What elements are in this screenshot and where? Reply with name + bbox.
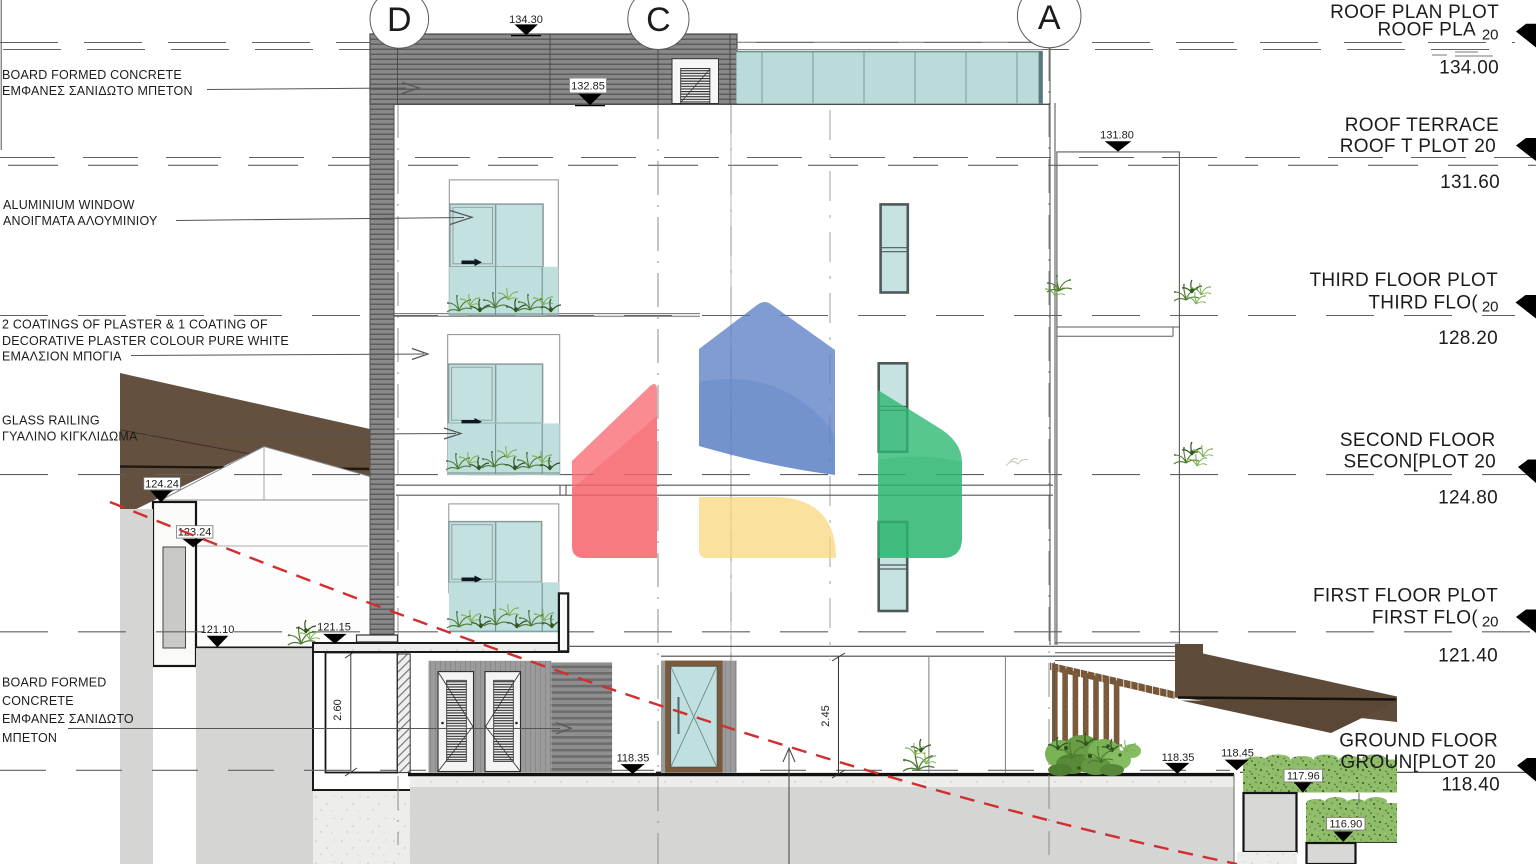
svg-text:121.15: 121.15 <box>317 622 351 634</box>
svg-text:ΕΜΑΛΣΙΟΝ ΜΠΟΓΙΑ: ΕΜΑΛΣΙΟΝ ΜΠΟΓΙΑ <box>2 350 122 364</box>
svg-text:C: C <box>646 1 671 39</box>
svg-text:2.45: 2.45 <box>820 705 832 726</box>
svg-text:134.30: 134.30 <box>509 14 543 26</box>
svg-text:118.35: 118.35 <box>1162 752 1195 764</box>
svg-text:CONCRETE: CONCRETE <box>2 694 74 708</box>
svg-text:ΓΥΑΛΙΝΟ ΚΙΓΚΛΙΔΩΜΑ: ΓΥΑΛΙΝΟ ΚΙΓΚΛΙΔΩΜΑ <box>2 429 138 443</box>
svg-text:118.45: 118.45 <box>1221 747 1254 759</box>
svg-text:ROOF T PLOT 20: ROOF T PLOT 20 <box>1340 136 1496 157</box>
svg-text:THIRD FLOOR PLOT: THIRD FLOOR PLOT <box>1310 270 1499 291</box>
svg-text:128.20: 128.20 <box>1438 328 1498 349</box>
svg-text:118.35: 118.35 <box>617 752 650 764</box>
svg-text:20: 20 <box>1482 299 1499 316</box>
svg-text:GLASS RAILING: GLASS RAILING <box>2 414 100 428</box>
svg-text:DECORATIVE PLASTER COLOUR PURE: DECORATIVE PLASTER COLOUR PURE WHITE <box>2 334 289 348</box>
svg-text:131.80: 131.80 <box>1100 130 1134 142</box>
svg-text:GROUND FLOOR: GROUND FLOOR <box>1339 731 1498 752</box>
svg-text:GROUN[PLOT 20: GROUN[PLOT 20 <box>1340 752 1496 773</box>
svg-text:2.60: 2.60 <box>332 699 344 720</box>
svg-text:124.80: 124.80 <box>1438 488 1498 509</box>
svg-text:SECON[PLOT 20: SECON[PLOT 20 <box>1344 452 1496 473</box>
svg-text:124.24: 124.24 <box>145 478 179 490</box>
svg-text:ΑΝΟΙΓΜΑΤΑ ΑΛΟΥΜΙΝΙΟΥ: ΑΝΟΙΓΜΑΤΑ ΑΛΟΥΜΙΝΙΟΥ <box>3 214 158 228</box>
svg-text:118.40: 118.40 <box>1441 775 1500 796</box>
svg-text:ΜΠΕΤΟΝ: ΜΠΕΤΟΝ <box>2 731 57 745</box>
svg-text:A: A <box>1038 0 1061 37</box>
svg-text:117.96: 117.96 <box>1287 771 1320 783</box>
svg-text:ROOF TERRACE: ROOF TERRACE <box>1345 115 1499 136</box>
svg-text:THIRD FLO(: THIRD FLO( <box>1368 293 1478 314</box>
svg-text:121.40: 121.40 <box>1438 646 1498 667</box>
svg-text:134.00: 134.00 <box>1439 58 1499 79</box>
svg-text:ROOF PLA: ROOF PLA <box>1378 20 1477 41</box>
svg-text:BOARD FORMED: BOARD FORMED <box>2 676 107 690</box>
svg-text:2 COATINGS OF PLASTER & 1 COAT: 2 COATINGS OF PLASTER & 1 COATING OF <box>2 318 268 332</box>
svg-text:20: 20 <box>1482 614 1499 631</box>
svg-text:131.60: 131.60 <box>1440 172 1500 193</box>
svg-text:132.85: 132.85 <box>571 81 605 93</box>
svg-text:121.10: 121.10 <box>201 624 235 636</box>
svg-text:FIRST FLOOR PLOT: FIRST FLOOR PLOT <box>1313 586 1498 607</box>
svg-text:SECOND FLOOR: SECOND FLOOR <box>1340 430 1496 451</box>
svg-text:BOARD FORMED CONCRETE: BOARD FORMED CONCRETE <box>2 68 182 82</box>
svg-text:116.90: 116.90 <box>1329 819 1362 831</box>
svg-text:D: D <box>387 1 412 39</box>
svg-text:20: 20 <box>1482 27 1499 44</box>
svg-text:ΕΜΦΑΝΕΣ ΣΑΝΙΔΩΤΟ: ΕΜΦΑΝΕΣ ΣΑΝΙΔΩΤΟ <box>2 712 134 726</box>
svg-text:ALUMINIUM WINDOW: ALUMINIUM WINDOW <box>3 198 135 212</box>
svg-text:FIRST FLO(: FIRST FLO( <box>1372 608 1478 629</box>
svg-text:123.24: 123.24 <box>178 527 212 539</box>
svg-text:ΕΜΦΑΝΕΣ ΣΑΝΙΔΩΤΟ ΜΠΕΤΟΝ: ΕΜΦΑΝΕΣ ΣΑΝΙΔΩΤΟ ΜΠΕΤΟΝ <box>2 84 193 98</box>
